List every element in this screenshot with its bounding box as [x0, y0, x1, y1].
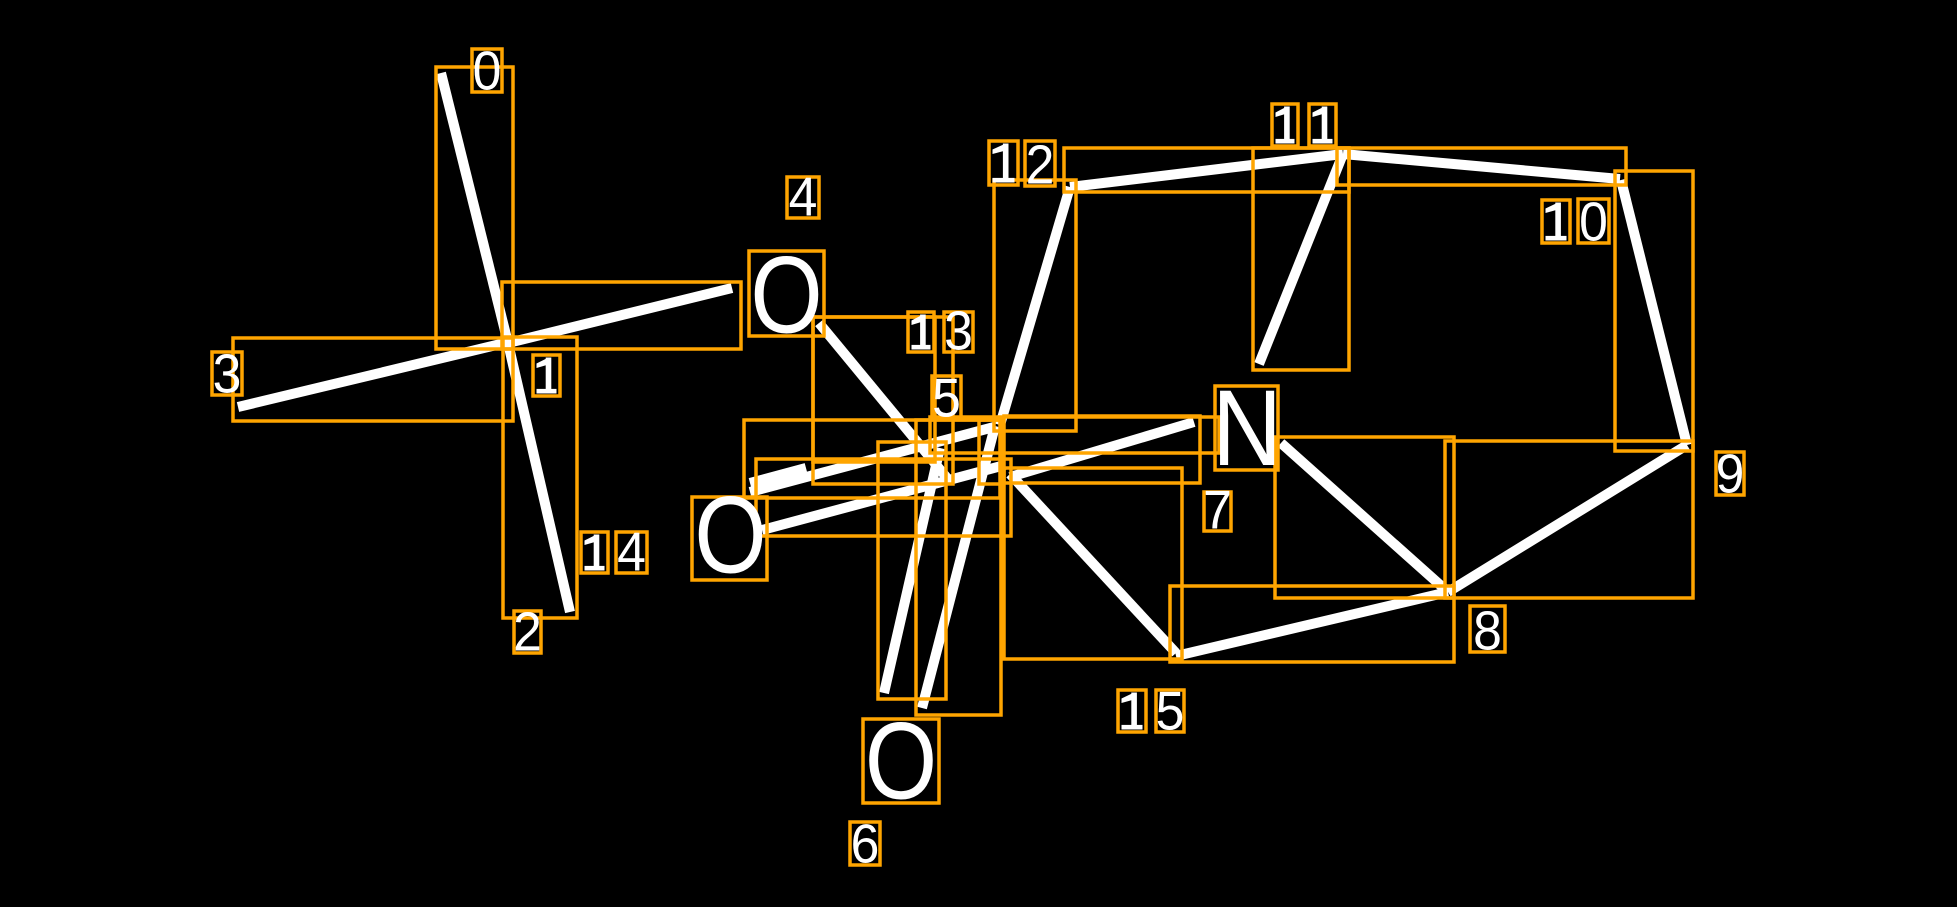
- svg-text:5: 5: [1156, 681, 1185, 742]
- svg-text:9: 9: [1716, 444, 1745, 505]
- svg-text:3: 3: [944, 301, 973, 362]
- svg-text:O: O: [750, 233, 822, 356]
- svg-text:6: 6: [851, 814, 880, 875]
- svg-text:5: 5: [932, 368, 961, 429]
- svg-text:0: 0: [1579, 192, 1608, 253]
- svg-text:8: 8: [1473, 601, 1502, 662]
- svg-text:4: 4: [617, 522, 646, 583]
- svg-text:4: 4: [789, 167, 818, 228]
- svg-text:7: 7: [1203, 480, 1232, 541]
- svg-text:2: 2: [1026, 135, 1055, 196]
- svg-text:N: N: [1212, 367, 1282, 488]
- svg-text:O: O: [694, 473, 766, 596]
- svg-text:2: 2: [513, 602, 542, 663]
- svg-text:0: 0: [473, 41, 502, 102]
- svg-text:3: 3: [213, 344, 242, 405]
- svg-text:O: O: [865, 699, 937, 822]
